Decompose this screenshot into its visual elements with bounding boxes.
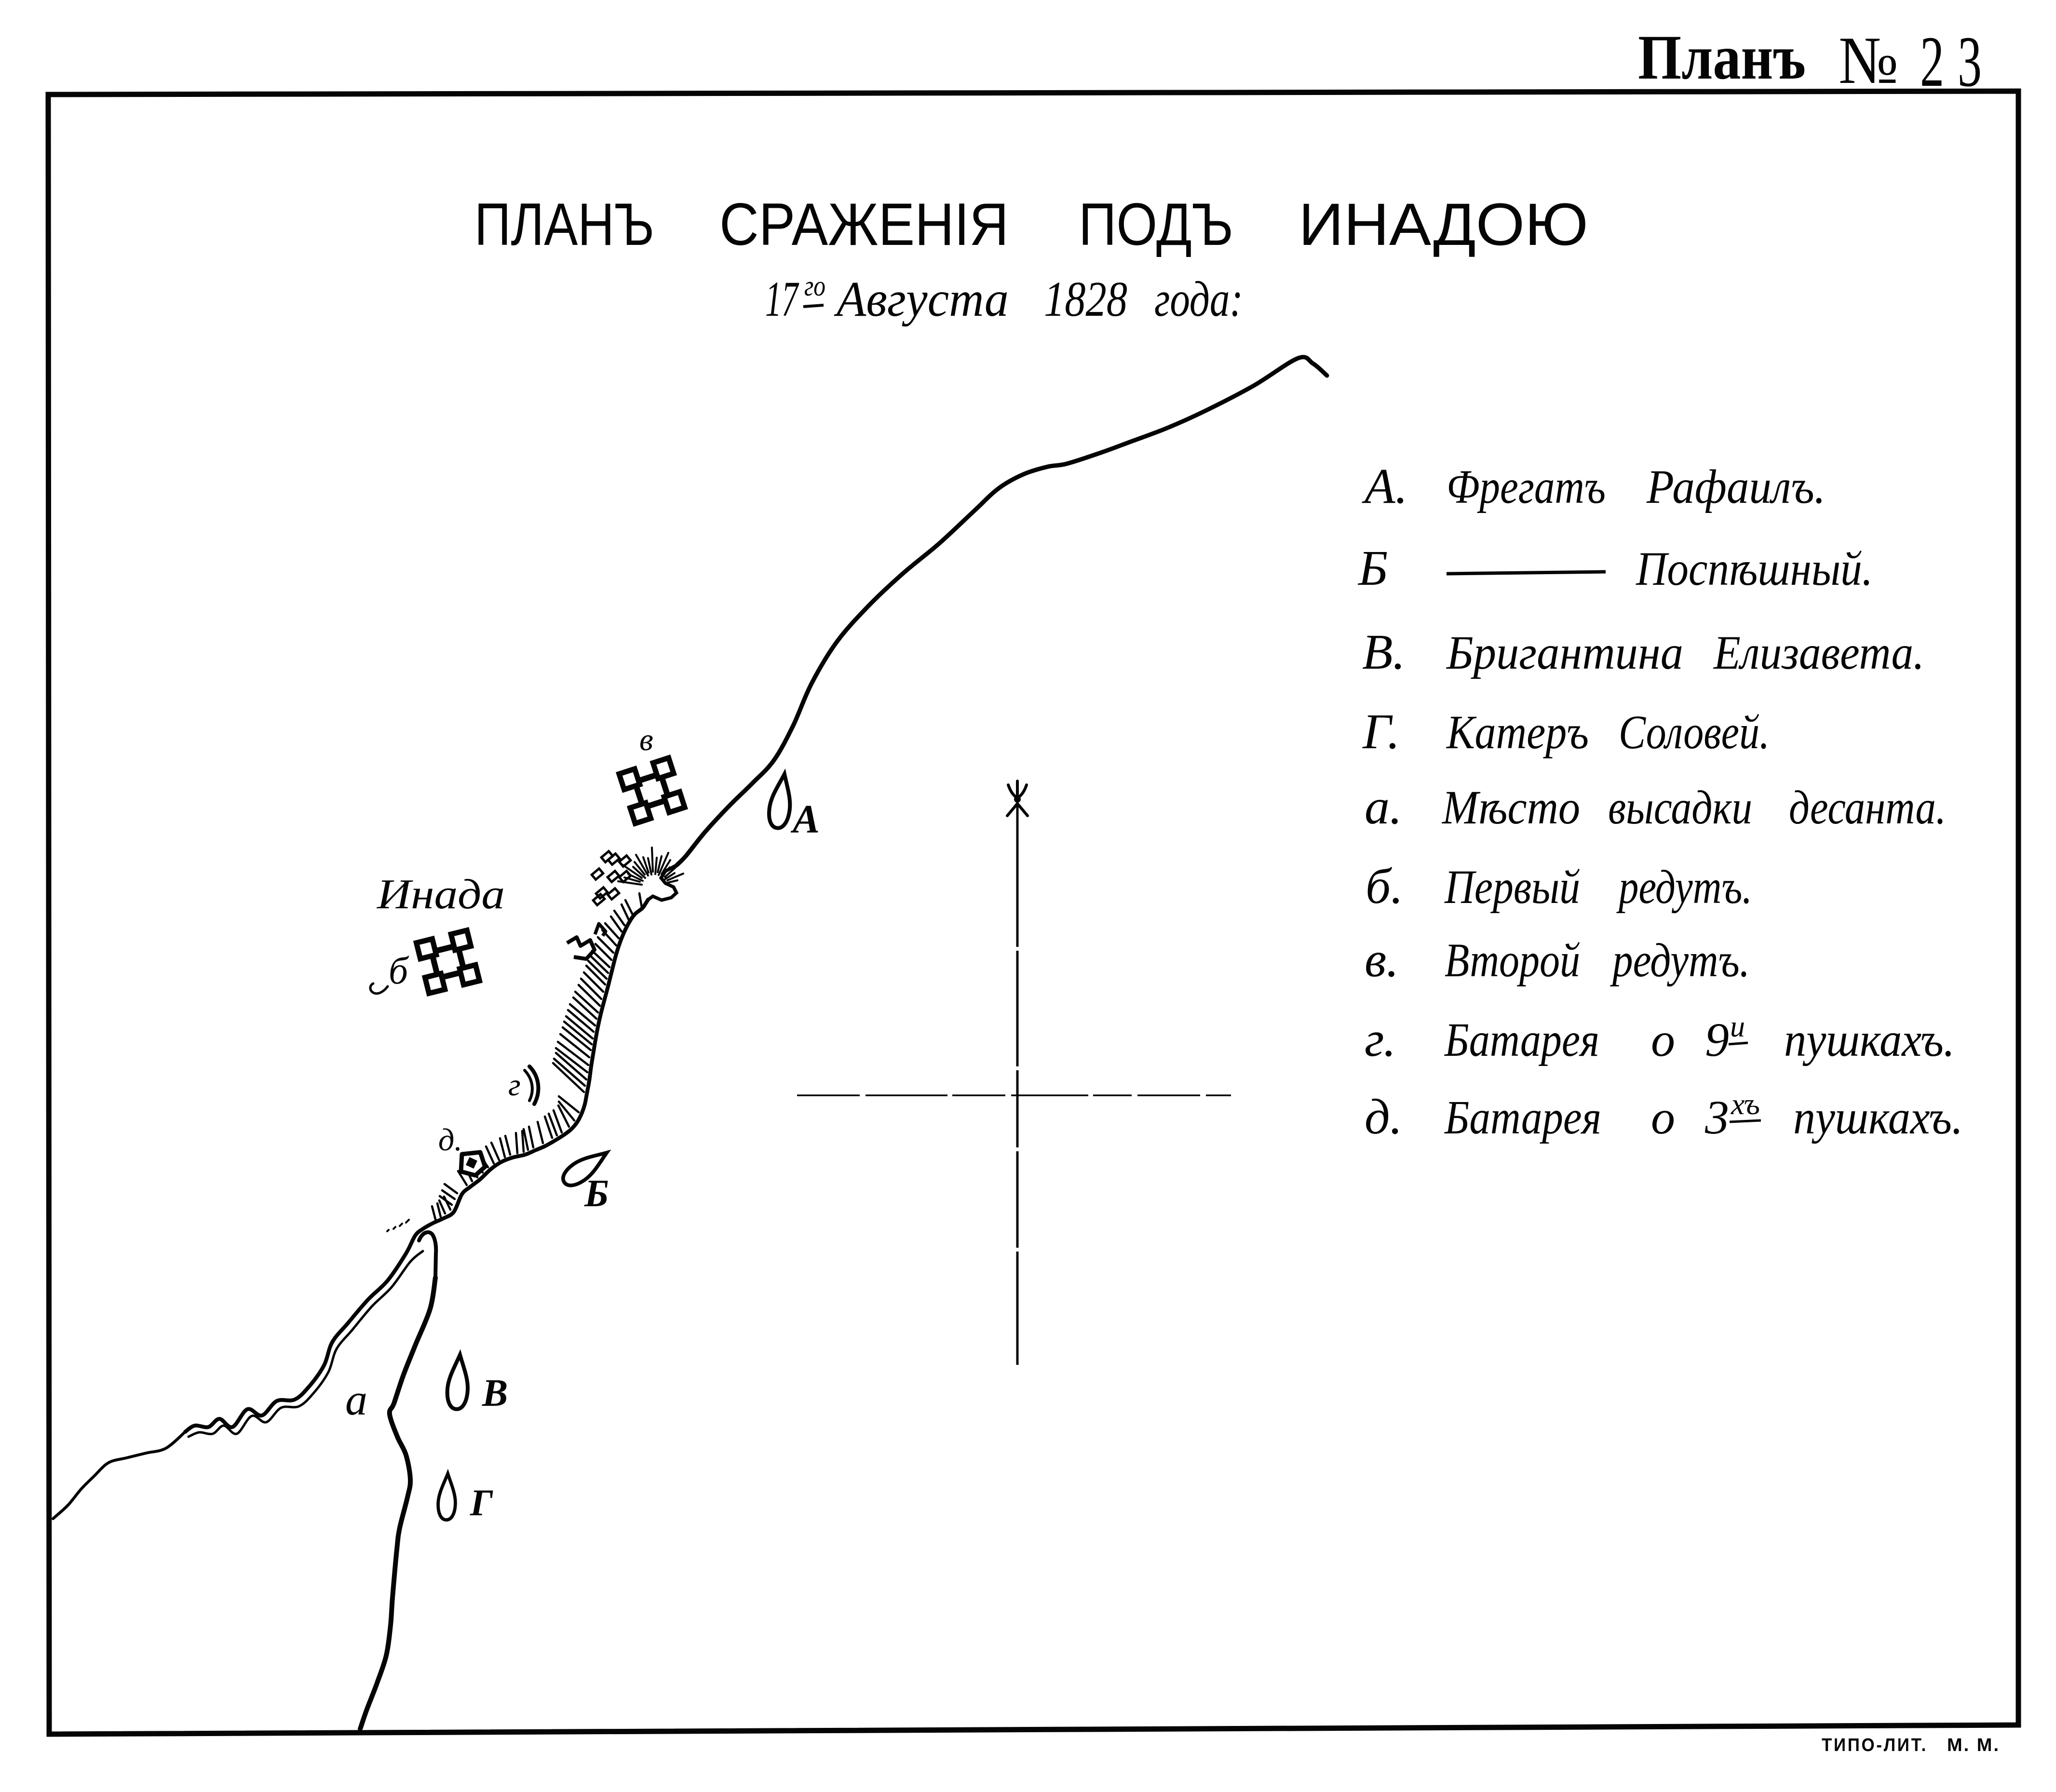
svg-text:Фрегатъ: Фрегатъ <box>1447 460 1606 513</box>
svg-text:года:: года: <box>1154 271 1243 327</box>
svg-text:Г.: Г. <box>1362 704 1400 759</box>
svg-text:Б: Б <box>1357 540 1388 596</box>
svg-text:Первый: Первый <box>1444 860 1580 914</box>
svg-text:редутъ.: редутъ. <box>1610 933 1750 987</box>
svg-text:В.: В. <box>1362 624 1406 680</box>
svg-text:а: а <box>345 1375 367 1424</box>
svg-text:б.: б. <box>1366 859 1403 914</box>
svg-text:пушкахъ.: пушкахъ. <box>1793 1091 1963 1144</box>
svg-text:Мѣсто: Мѣсто <box>1441 781 1580 834</box>
svg-text:пушкахъ.: пушкахъ. <box>1784 1013 1955 1066</box>
svg-text:Соловей.: Соловей. <box>1619 705 1770 759</box>
svg-text:Б: Б <box>584 1172 609 1215</box>
svg-text:Елизавета.: Елизавета. <box>1713 626 1924 679</box>
svg-text:высадки: высадки <box>1608 781 1752 834</box>
svg-text:д.: д. <box>438 1122 462 1158</box>
svg-text:Батарея: Батарея <box>1444 1091 1601 1144</box>
svg-text:Августа: Августа <box>834 271 1009 327</box>
svg-text:3: 3 <box>1958 22 1982 102</box>
svg-text:Рафаилъ.: Рафаилъ. <box>1646 460 1826 513</box>
svg-text:Поспѣшный.: Поспѣшный. <box>1636 542 1873 595</box>
svg-text:в.: в. <box>1365 932 1399 987</box>
svg-text:Второй: Второй <box>1445 933 1580 987</box>
svg-text:2: 2 <box>1920 22 1944 102</box>
svg-text:го: го <box>804 270 825 302</box>
svg-text:№: № <box>1839 23 1898 98</box>
svg-text:Бригантина: Бригантина <box>1446 626 1683 679</box>
svg-text:СРАЖЕНІЯ: СРАЖЕНІЯ <box>719 191 1009 258</box>
svg-text:а.: а. <box>1365 779 1402 835</box>
svg-text:б: б <box>389 950 409 992</box>
svg-text:ТИПО-ЛИТ.: ТИПО-ЛИТ. <box>1822 1735 1928 1755</box>
svg-text:г.: г. <box>1365 1011 1396 1067</box>
svg-text:и: и <box>1730 1011 1745 1043</box>
svg-text:А.: А. <box>1362 458 1408 514</box>
svg-text:десанта.: десанта. <box>1789 781 1946 834</box>
svg-text:г: г <box>508 1067 521 1103</box>
svg-text:Катеръ: Катеръ <box>1446 705 1589 759</box>
svg-text:д.: д. <box>1365 1089 1403 1145</box>
svg-text:В: В <box>482 1372 508 1415</box>
svg-text:М. М.: М. М. <box>1947 1735 2000 1755</box>
svg-text:Инада: Инада <box>377 871 505 918</box>
svg-text:1828: 1828 <box>1044 271 1127 327</box>
svg-text:ПЛАНЪ: ПЛАНЪ <box>474 191 654 258</box>
svg-text:3: 3 <box>1704 1091 1729 1144</box>
svg-text:ПОДЪ: ПОДЪ <box>1079 191 1233 258</box>
svg-text:о: о <box>1651 1091 1675 1144</box>
svg-text:в: в <box>639 722 653 757</box>
svg-text:А: А <box>790 797 820 842</box>
svg-text:Планъ: Планъ <box>1638 22 1806 93</box>
svg-text:17: 17 <box>765 271 799 327</box>
svg-text:редутъ.: редутъ. <box>1616 860 1752 914</box>
svg-text:хъ: хъ <box>1731 1088 1760 1121</box>
svg-text:ИНАДОЮ: ИНАДОЮ <box>1299 191 1588 258</box>
svg-text:9: 9 <box>1705 1013 1729 1066</box>
svg-text:Г: Г <box>470 1482 493 1523</box>
svg-text:о: о <box>1651 1013 1675 1066</box>
svg-text:Батарея: Батарея <box>1444 1013 1599 1066</box>
